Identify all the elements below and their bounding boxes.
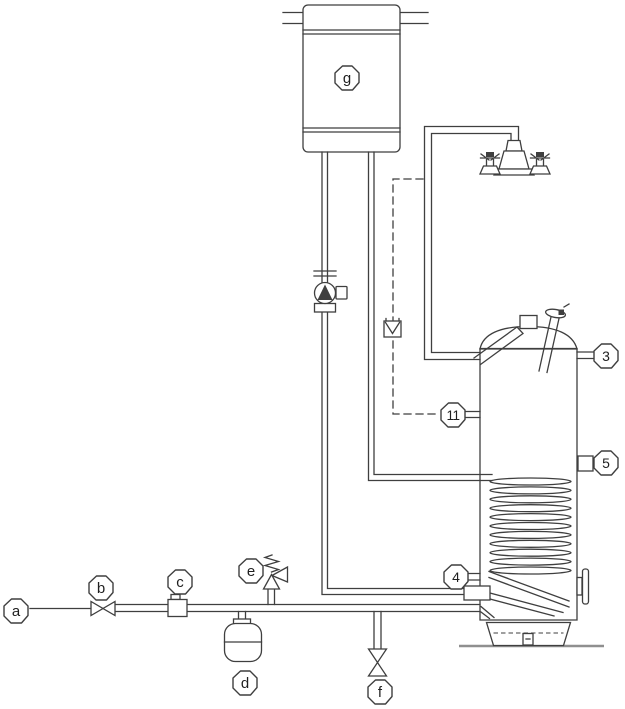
callout-4-tank-port: 4 [442, 563, 470, 591]
callout-e-safety-valve: e [237, 557, 265, 585]
callout-g-boiler: g [333, 64, 361, 92]
junction-box [384, 319, 401, 338]
tank-dome [480, 327, 577, 350]
callout-f-drain-valve: f [366, 678, 394, 706]
vent-valve-icon [559, 310, 565, 316]
boiler-return-pipe [322, 152, 464, 595]
drain-branch-pipe [374, 612, 381, 650]
tank-port-11-stub [466, 412, 480, 418]
callout-b-shutoff-valve: b [87, 574, 115, 602]
callout-c-inline-component: c [166, 568, 194, 596]
pump-upper-flange [314, 271, 336, 276]
tank-dome-stub [520, 316, 537, 329]
expansion-vessel [225, 619, 262, 662]
safety-valve-spring [265, 555, 279, 572]
callout-3-tank-port: 3 [592, 342, 620, 370]
callout-11-sensor-port: 11 [439, 401, 467, 429]
faucet-left-tap [480, 152, 500, 174]
callout-5-tank-port: 5 [592, 449, 620, 477]
safety-valve-riser [268, 589, 275, 605]
inspection-flange [583, 569, 589, 604]
shutoff-valve [91, 602, 115, 616]
callout-a-water-supply: a [2, 597, 30, 625]
pump-motor [336, 287, 347, 300]
control-line [393, 179, 440, 414]
flange-neck [577, 578, 582, 596]
schematic-line-art [0, 0, 625, 709]
faucet-right-tap [530, 152, 550, 174]
pump-lower-union [315, 304, 336, 313]
circulation-pump [314, 271, 347, 312]
vent-handle [564, 304, 569, 307]
drain-valve [369, 649, 387, 676]
tank-port-5-stub [578, 456, 593, 471]
inline-component [168, 595, 187, 617]
boiler-flow-pipe [369, 152, 493, 481]
safety-valve [264, 555, 288, 589]
heating-system-schematic: g 3 5 11 4 a b c e d f [0, 0, 625, 709]
callout-d-expansion-vessel: d [231, 669, 259, 697]
faucet-fixture [480, 141, 550, 176]
